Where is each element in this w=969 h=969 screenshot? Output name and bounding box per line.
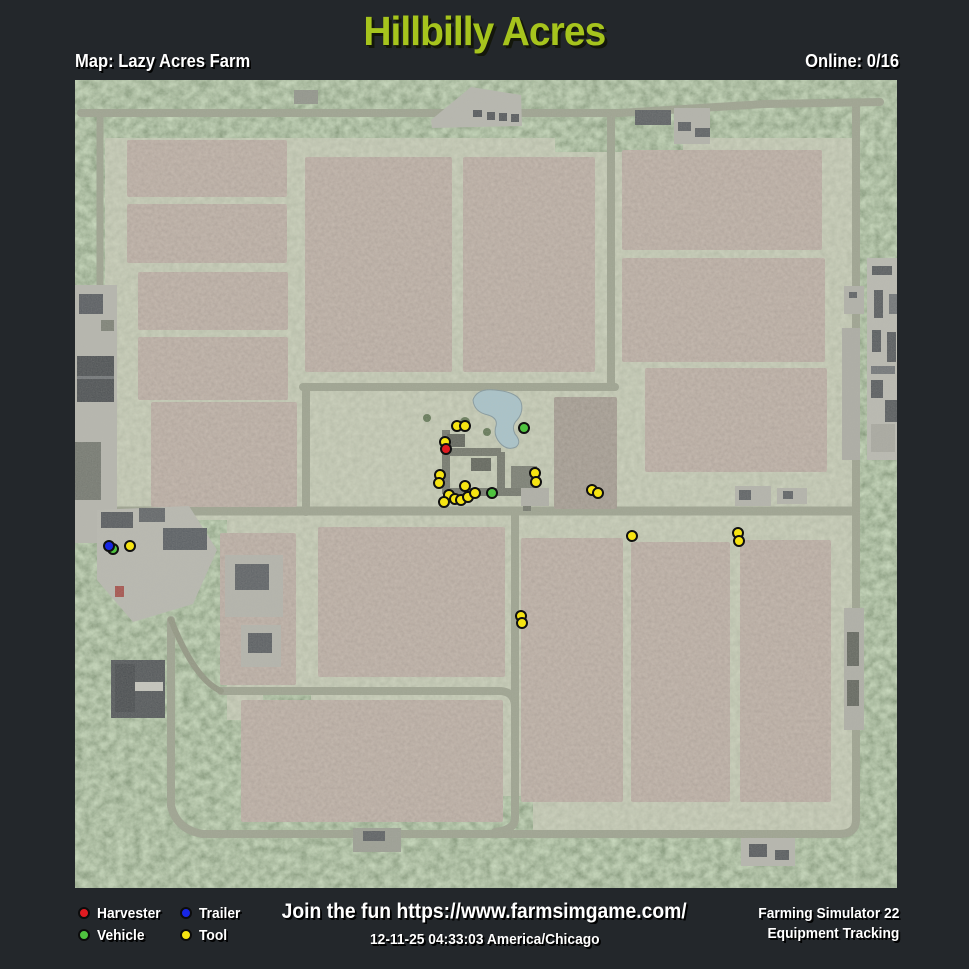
marker-tool [517, 618, 527, 628]
page-title: Hillbilly Acres [0, 8, 969, 55]
marker-tool [460, 421, 470, 431]
marker-vehicle [519, 423, 529, 433]
marker-tool [439, 497, 449, 507]
farm-map [75, 80, 897, 888]
marker-tool [434, 478, 444, 488]
marker-tool [460, 481, 470, 491]
marker-tool [734, 536, 744, 546]
brand-line2: Equipment Tracking [746, 924, 899, 944]
marker-harvester [441, 444, 451, 454]
brand-block: Farming Simulator 22 Equipment Tracking [746, 904, 899, 944]
marker-tool [470, 488, 480, 498]
map-name-label: Map: Lazy Acres Farm [75, 51, 265, 72]
farm-map-canvas [75, 80, 897, 888]
marker-tool [627, 531, 637, 541]
marker-tool [593, 488, 603, 498]
marker-trailer [104, 541, 114, 551]
brand-line1: Farming Simulator 22 [746, 904, 899, 924]
marker-tool [531, 477, 541, 487]
online-count-label: Online: 0/16 [797, 51, 899, 72]
marker-tool [125, 541, 135, 551]
page: Hillbilly Acres Map: Lazy Acres Farm Onl… [0, 0, 969, 969]
marker-vehicle [487, 488, 497, 498]
grain-overlay [75, 80, 897, 888]
